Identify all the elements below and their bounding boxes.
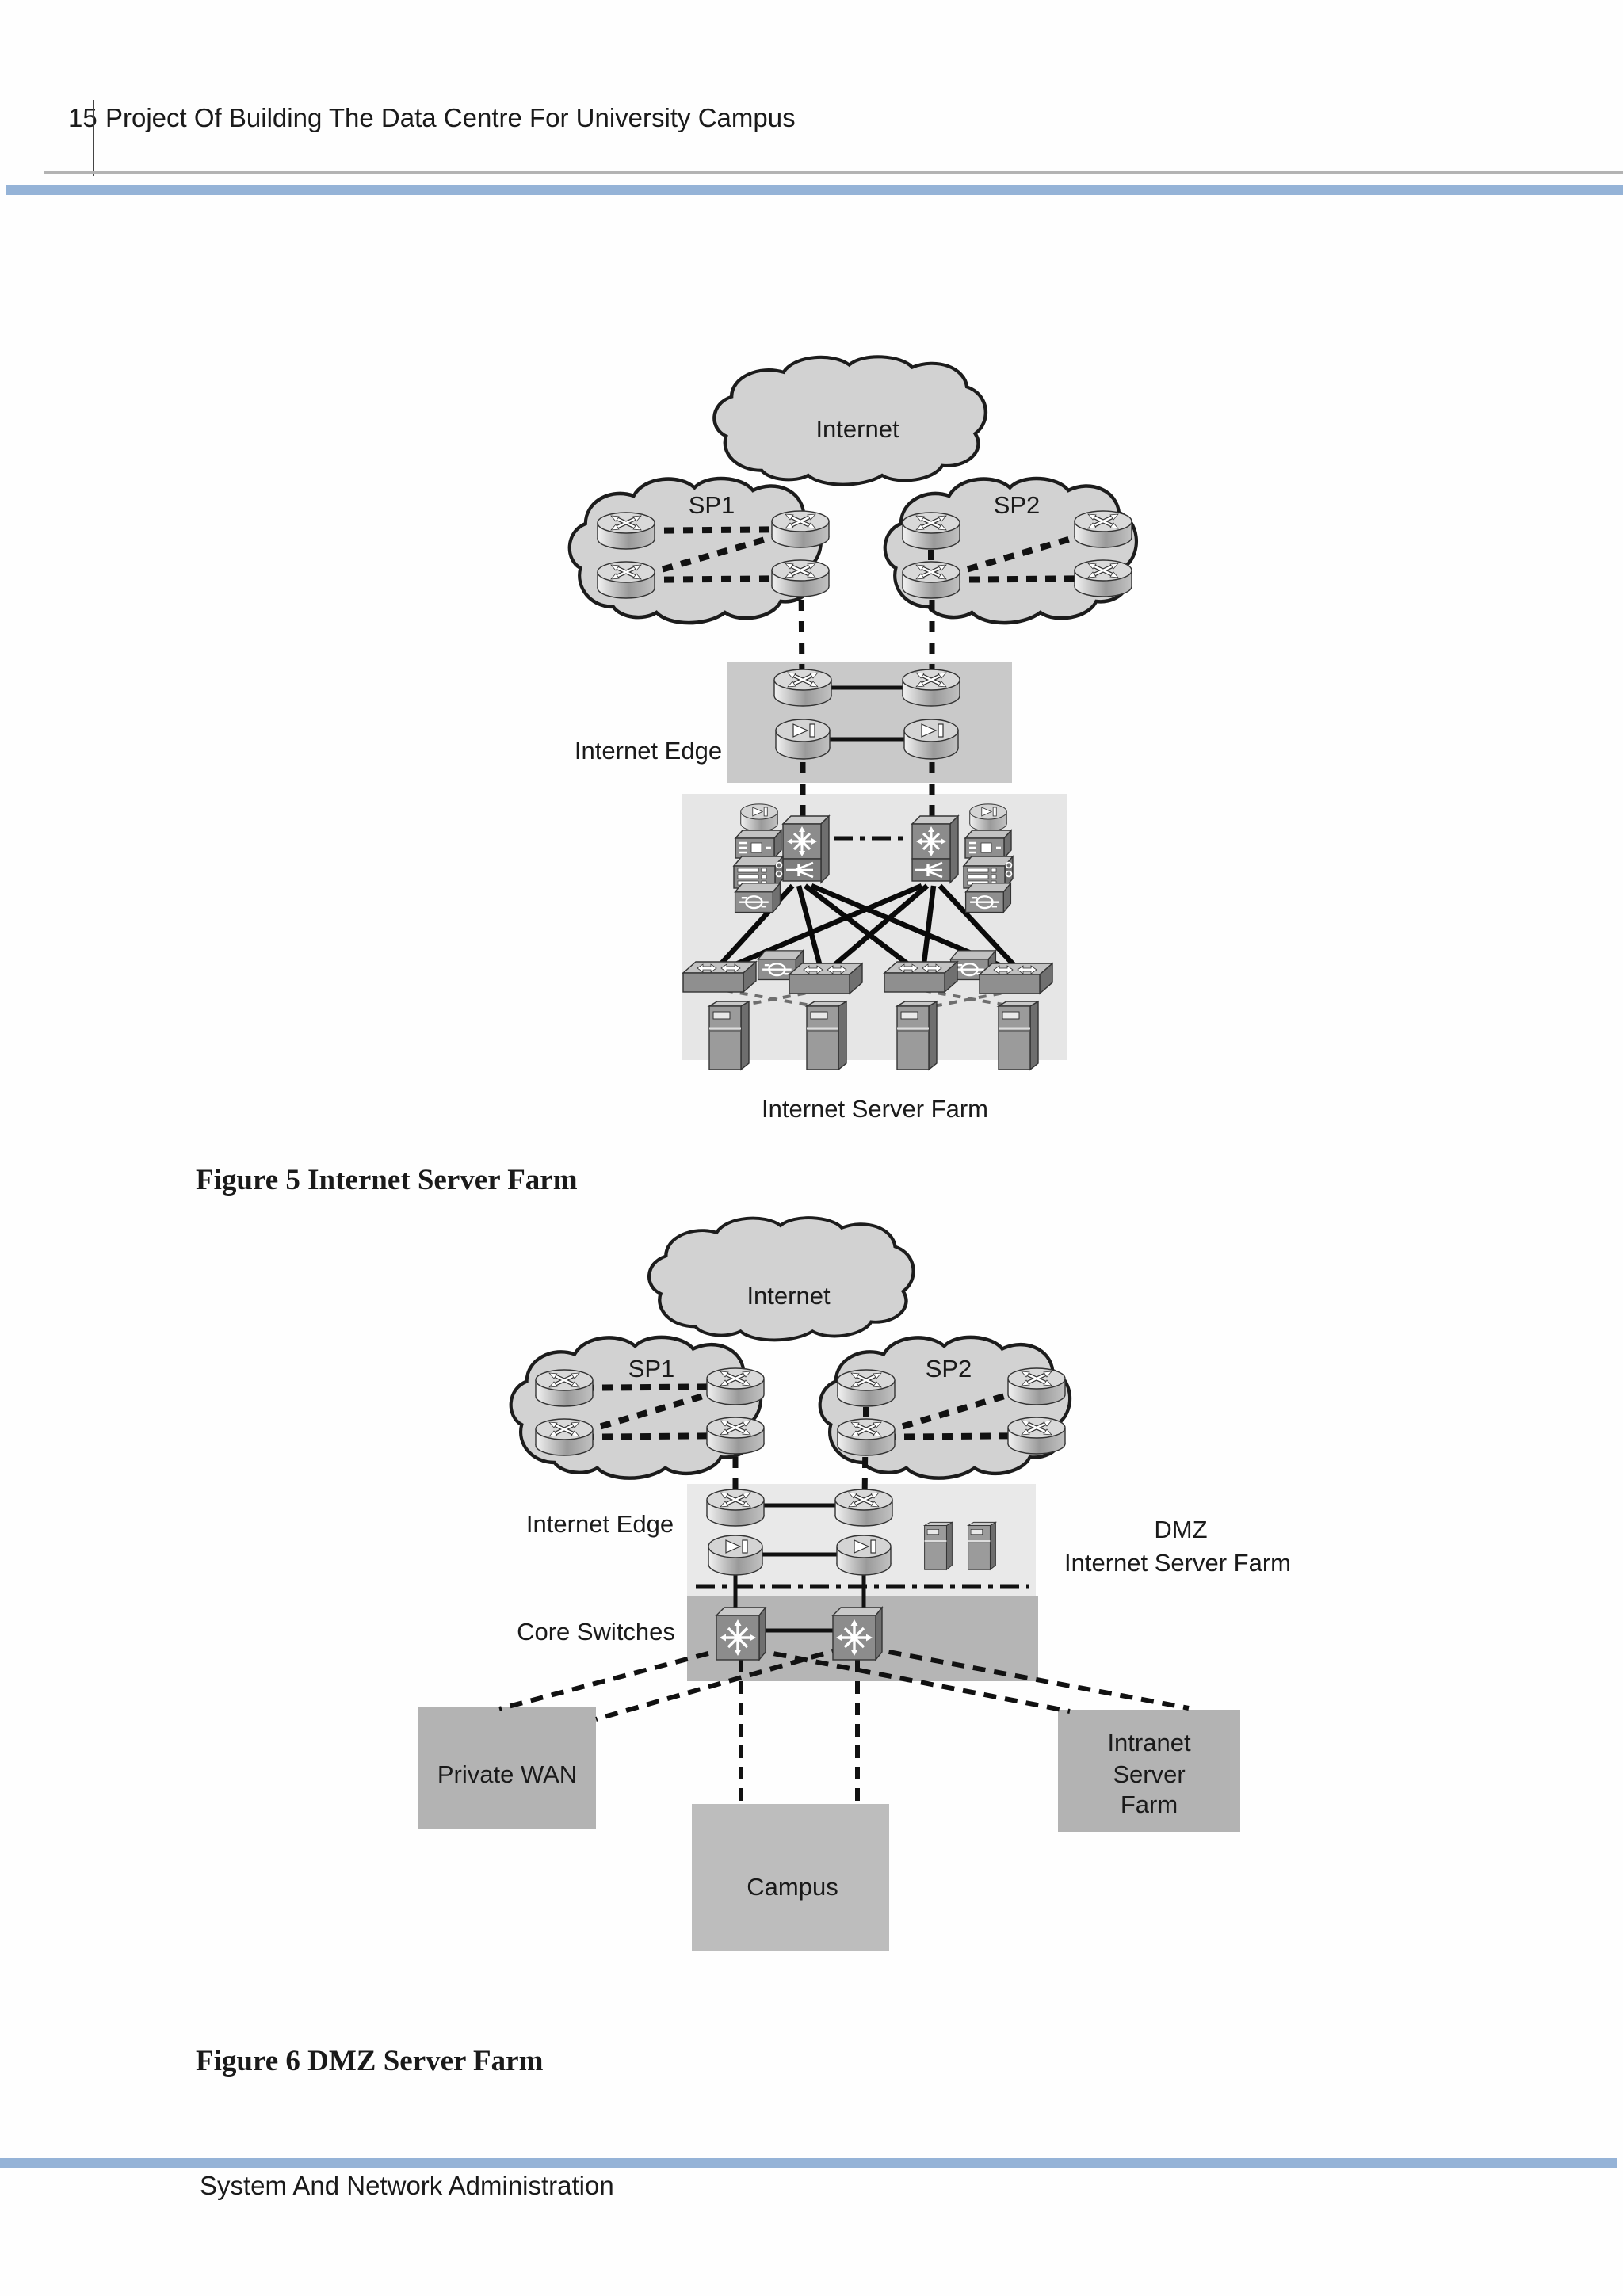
edge-router-icon (903, 669, 960, 706)
private-wan-label: Private WAN (437, 1760, 577, 1788)
aggregation-switch-icon (783, 816, 829, 883)
load-balancer-icon (735, 830, 781, 858)
access-switch-icon (884, 962, 957, 992)
load-balancer-icon (965, 830, 1011, 858)
router-icon (707, 1368, 764, 1405)
router-icon (903, 562, 960, 598)
footer-accent-bar (0, 2158, 1617, 2168)
intranet-label-line1: Intranet (1107, 1729, 1191, 1756)
router-icon (1008, 1417, 1065, 1454)
router-icon (903, 513, 960, 549)
ssl-appliance-icon (966, 883, 1011, 913)
cache-engine-icon (741, 804, 778, 831)
figure6-diagram: Internet SP1 SP2 Internet Edge DMZ Inter… (0, 1204, 1623, 1965)
router-icon (707, 1417, 764, 1454)
router-icon (536, 1419, 593, 1455)
internet-cloud (649, 1218, 913, 1340)
footer-text: System And Network Administration (200, 2171, 614, 2201)
router-icon (598, 562, 655, 598)
figure5-caption: Figure 5 Internet Server Farm (196, 1163, 578, 1197)
figure5-diagram: Internet SP1 SP2 Internet Edge Internet … (0, 341, 1623, 1125)
header-rule (44, 171, 1623, 174)
intranet-label-line3: Farm (1121, 1791, 1178, 1818)
firewall-icon (776, 719, 830, 759)
access-switch-icon (683, 962, 756, 992)
sp1-label: SP1 (628, 1355, 675, 1383)
internet-label: Internet (747, 1282, 831, 1310)
internet-edge-zone (727, 662, 1012, 783)
router-icon (1008, 1368, 1065, 1405)
intranet-label-line2: Server (1113, 1760, 1185, 1788)
access-switch-icon (789, 963, 862, 994)
server-icon (897, 1001, 937, 1070)
sp2-label: SP2 (926, 1355, 972, 1383)
header-accent-bar (6, 185, 1623, 195)
internet-label: Internet (815, 415, 899, 443)
figure6-caption: Figure 6 DMZ Server Farm (196, 2044, 543, 2078)
server-icon (999, 1001, 1038, 1070)
router-icon (838, 1370, 895, 1406)
server-farm-label: Internet Server Farm (762, 1095, 988, 1123)
dmz-label-line1: DMZ (1154, 1516, 1207, 1543)
core-switch-icon (833, 1608, 882, 1660)
core-switch-icon (716, 1608, 766, 1660)
firewall-icon (904, 719, 958, 759)
server-icon (807, 1001, 846, 1070)
core-switches-label: Core Switches (517, 1618, 675, 1646)
router-icon (536, 1370, 593, 1406)
internet-edge-label: Internet Edge (526, 1510, 674, 1538)
server-icon (709, 1001, 749, 1070)
dmz-server-icon (968, 1522, 996, 1569)
internet-edge-label: Internet Edge (575, 737, 722, 765)
access-switch-icon (980, 963, 1052, 994)
aggregation-switch-icon (912, 816, 958, 883)
router-icon (772, 511, 829, 547)
sp1-label: SP1 (689, 491, 735, 519)
page-title: Project Of Building The Data Centre For … (105, 103, 796, 133)
router-icon (1075, 560, 1132, 597)
firewall-icon (837, 1535, 891, 1575)
dmz-server-icon (925, 1522, 953, 1569)
router-icon (1075, 511, 1132, 547)
firewall-icon (708, 1535, 762, 1575)
edge-router-icon (774, 669, 831, 706)
router-icon (772, 560, 829, 597)
sp2-label: SP2 (994, 491, 1041, 519)
edge-router-icon (707, 1489, 764, 1526)
ssl-appliance-icon (735, 883, 781, 913)
cache-engine-icon (970, 804, 1007, 831)
edge-router-icon (835, 1489, 892, 1526)
document-page: 15 Project Of Building The Data Centre F… (0, 0, 1623, 2296)
campus-label: Campus (747, 1873, 838, 1901)
header-divider (93, 100, 94, 176)
router-icon (838, 1419, 895, 1455)
dmz-label-line2: Internet Server Farm (1064, 1549, 1291, 1577)
router-icon (598, 513, 655, 549)
